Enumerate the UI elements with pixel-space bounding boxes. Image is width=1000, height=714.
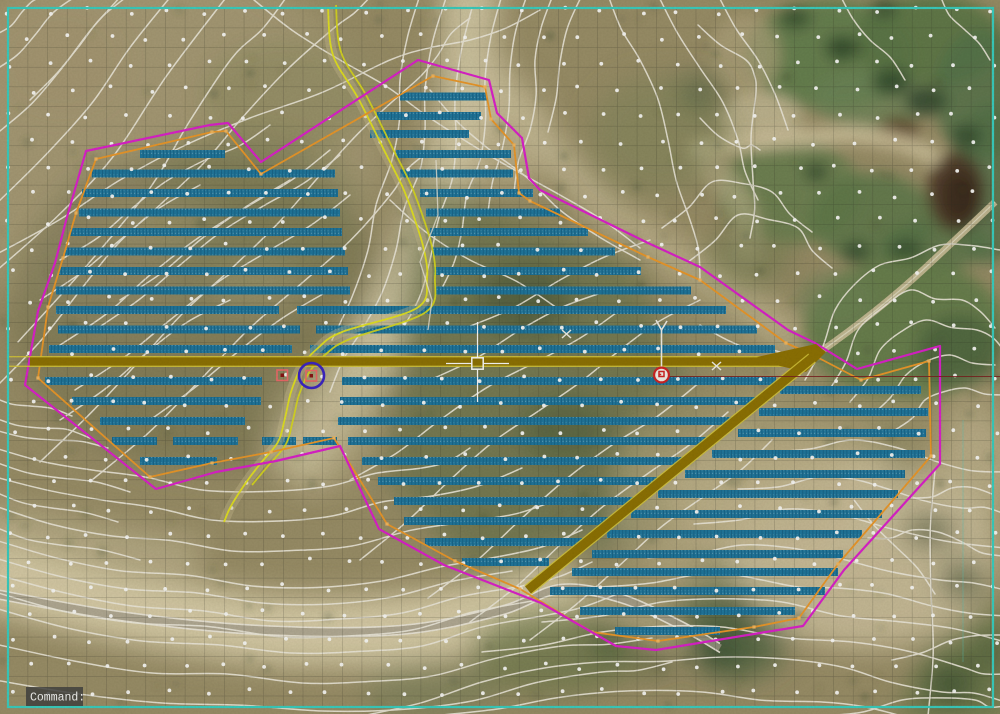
svg-text:Command:: Command: bbox=[30, 692, 85, 705]
